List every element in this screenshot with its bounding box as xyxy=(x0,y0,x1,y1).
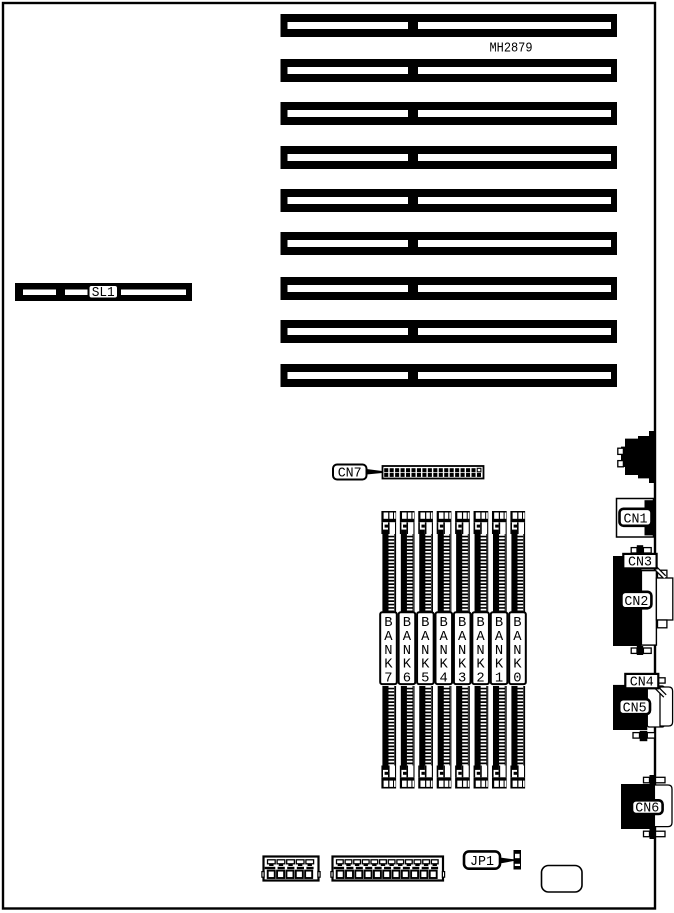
svg-text:CN4: CN4 xyxy=(630,675,654,691)
svg-text:1: 1 xyxy=(495,672,503,687)
svg-text:K: K xyxy=(421,658,430,673)
svg-text:A: A xyxy=(440,630,449,645)
svg-text:B: B xyxy=(495,616,503,631)
svg-text:CN7: CN7 xyxy=(338,465,362,481)
svg-text:N: N xyxy=(458,644,466,659)
svg-text:CN1: CN1 xyxy=(624,511,648,527)
svg-text:A: A xyxy=(476,630,485,645)
svg-text:B: B xyxy=(403,616,411,631)
svg-text:JP1: JP1 xyxy=(470,854,494,870)
svg-text:A: A xyxy=(421,630,430,645)
svg-text:N: N xyxy=(476,644,484,659)
svg-text:K: K xyxy=(495,658,504,673)
svg-text:B: B xyxy=(384,616,392,631)
svg-text:CN3: CN3 xyxy=(628,555,652,571)
svg-text:2: 2 xyxy=(476,672,484,687)
svg-text:A: A xyxy=(403,630,412,645)
svg-text:K: K xyxy=(476,658,485,673)
svg-text:K: K xyxy=(403,658,412,673)
svg-text:CN6: CN6 xyxy=(635,800,659,816)
svg-text:N: N xyxy=(513,644,521,659)
svg-text:N: N xyxy=(384,644,392,659)
svg-text:6: 6 xyxy=(403,672,411,687)
svg-text:B: B xyxy=(476,616,484,631)
svg-text:B: B xyxy=(421,616,429,631)
svg-text:N: N xyxy=(403,644,411,659)
svg-text:B: B xyxy=(440,616,448,631)
svg-text:3: 3 xyxy=(458,672,466,687)
svg-text:A: A xyxy=(384,630,393,645)
svg-text:K: K xyxy=(440,658,449,673)
svg-text:B: B xyxy=(513,616,521,631)
svg-text:CN5: CN5 xyxy=(623,700,647,716)
svg-text:A: A xyxy=(495,630,504,645)
svg-text:A: A xyxy=(513,630,522,645)
svg-text:K: K xyxy=(384,658,393,673)
svg-text:K: K xyxy=(513,658,522,673)
svg-text:7: 7 xyxy=(384,672,392,687)
svg-text:N: N xyxy=(440,644,448,659)
svg-text:A: A xyxy=(458,630,467,645)
svg-text:N: N xyxy=(421,644,429,659)
svg-text:4: 4 xyxy=(440,672,448,687)
svg-text:5: 5 xyxy=(421,672,429,687)
svg-text:N: N xyxy=(495,644,503,659)
svg-text:SL1: SL1 xyxy=(92,285,115,301)
svg-text:K: K xyxy=(458,658,467,673)
svg-text:CN2: CN2 xyxy=(624,594,648,610)
svg-text:0: 0 xyxy=(513,672,521,687)
svg-text:MH2879: MH2879 xyxy=(490,41,533,57)
svg-text:B: B xyxy=(458,616,466,631)
